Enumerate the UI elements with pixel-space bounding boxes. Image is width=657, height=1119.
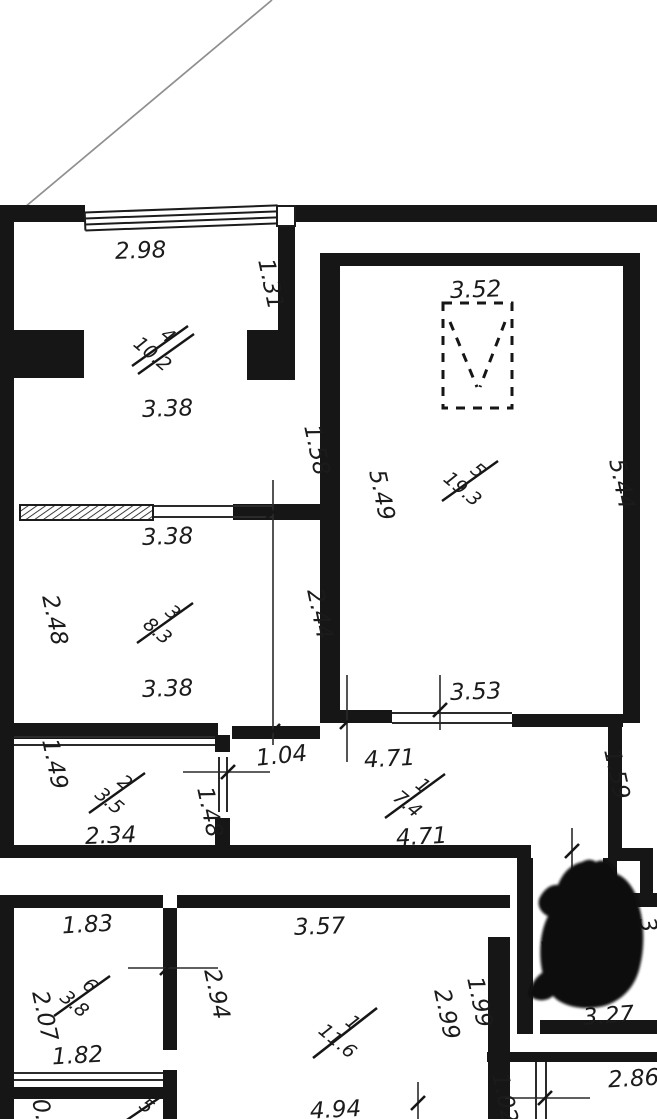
diagonal-stray-line (0, 0, 272, 228)
dim-room2-right: 1.48 (191, 784, 227, 840)
dim-room3-left: 2.48 (36, 592, 72, 648)
wall (247, 330, 295, 380)
dim-bottom-cut: 4.94 (309, 1096, 362, 1119)
wall (0, 895, 163, 908)
room-label-5: 5 19.3 (439, 449, 501, 511)
window-end-box (277, 206, 295, 226)
wall (163, 908, 177, 1050)
dim-room6-bottom: 1.82 (51, 1042, 104, 1071)
room-label-7: 1 11.6 (313, 1001, 377, 1063)
vent-shaft-symbol (443, 303, 512, 408)
dim-bottomleft-cut: 0.9 (26, 1096, 59, 1119)
svg-text:1: 1 (341, 1010, 364, 1035)
wall (0, 845, 531, 858)
floor-plan-drawing: 2.98 1.31 3.38 1.58 3.52 5.49 5.44 3.38 … (0, 0, 657, 1119)
dim-hall-right: 1.59 (598, 746, 634, 802)
room-label-2: 2 3.5 (89, 765, 145, 820)
floor-plan-page: 2.98 1.31 3.38 1.58 3.52 5.49 5.44 3.38 … (0, 0, 657, 1119)
window-interior (20, 505, 153, 520)
room-label-3: 3 8.3 (137, 595, 193, 650)
wall (640, 861, 653, 895)
dim-room3-bottom: 3.38 (142, 675, 194, 703)
dim-hall-width-b: 4.71 (395, 823, 448, 852)
wall (320, 253, 340, 723)
wall (517, 858, 533, 1034)
redaction-blob (529, 860, 643, 1008)
wall (320, 253, 640, 266)
wall (0, 205, 14, 855)
wall (512, 714, 623, 727)
dim-room7-right-b: 2.99 (428, 986, 464, 1042)
dim-room4-width: 3.38 (142, 395, 194, 423)
dim-hall-width-a: 4.71 (363, 745, 416, 774)
dim-room3-top: 3.38 (142, 523, 194, 551)
wall (488, 895, 510, 908)
dim-room2-bottom: 2.34 (85, 822, 137, 850)
wall (177, 895, 488, 908)
wall (14, 330, 84, 378)
dim-top-window: 2.98 (115, 237, 167, 265)
room-label-4: 4 10.2 (129, 314, 194, 376)
dimension-ticks (160, 505, 579, 1110)
wall (0, 895, 14, 1119)
dim-room7-top: 3.57 (294, 913, 346, 941)
dim-room6-top: 1.83 (61, 911, 114, 940)
thin-partitions (14, 504, 546, 1119)
dim-room6-right: 2.94 (198, 966, 234, 1022)
dim-bottom-right-b: 2.86 (607, 1065, 657, 1094)
dim-room5-left: 5.49 (363, 467, 399, 523)
window-top (85, 205, 279, 230)
wall (278, 205, 657, 222)
wall (215, 735, 230, 752)
dim-hall-top: 3.53 (450, 678, 502, 706)
dim-passage: 1.04 (255, 741, 309, 772)
wall (487, 1052, 657, 1062)
room-label-6: 6 3.8 (54, 968, 110, 1023)
dim-room6-left: 2.07 (26, 988, 62, 1044)
dim-room5-top: 3.52 (450, 276, 502, 304)
room-label-1: 1 7.4 (385, 768, 445, 823)
